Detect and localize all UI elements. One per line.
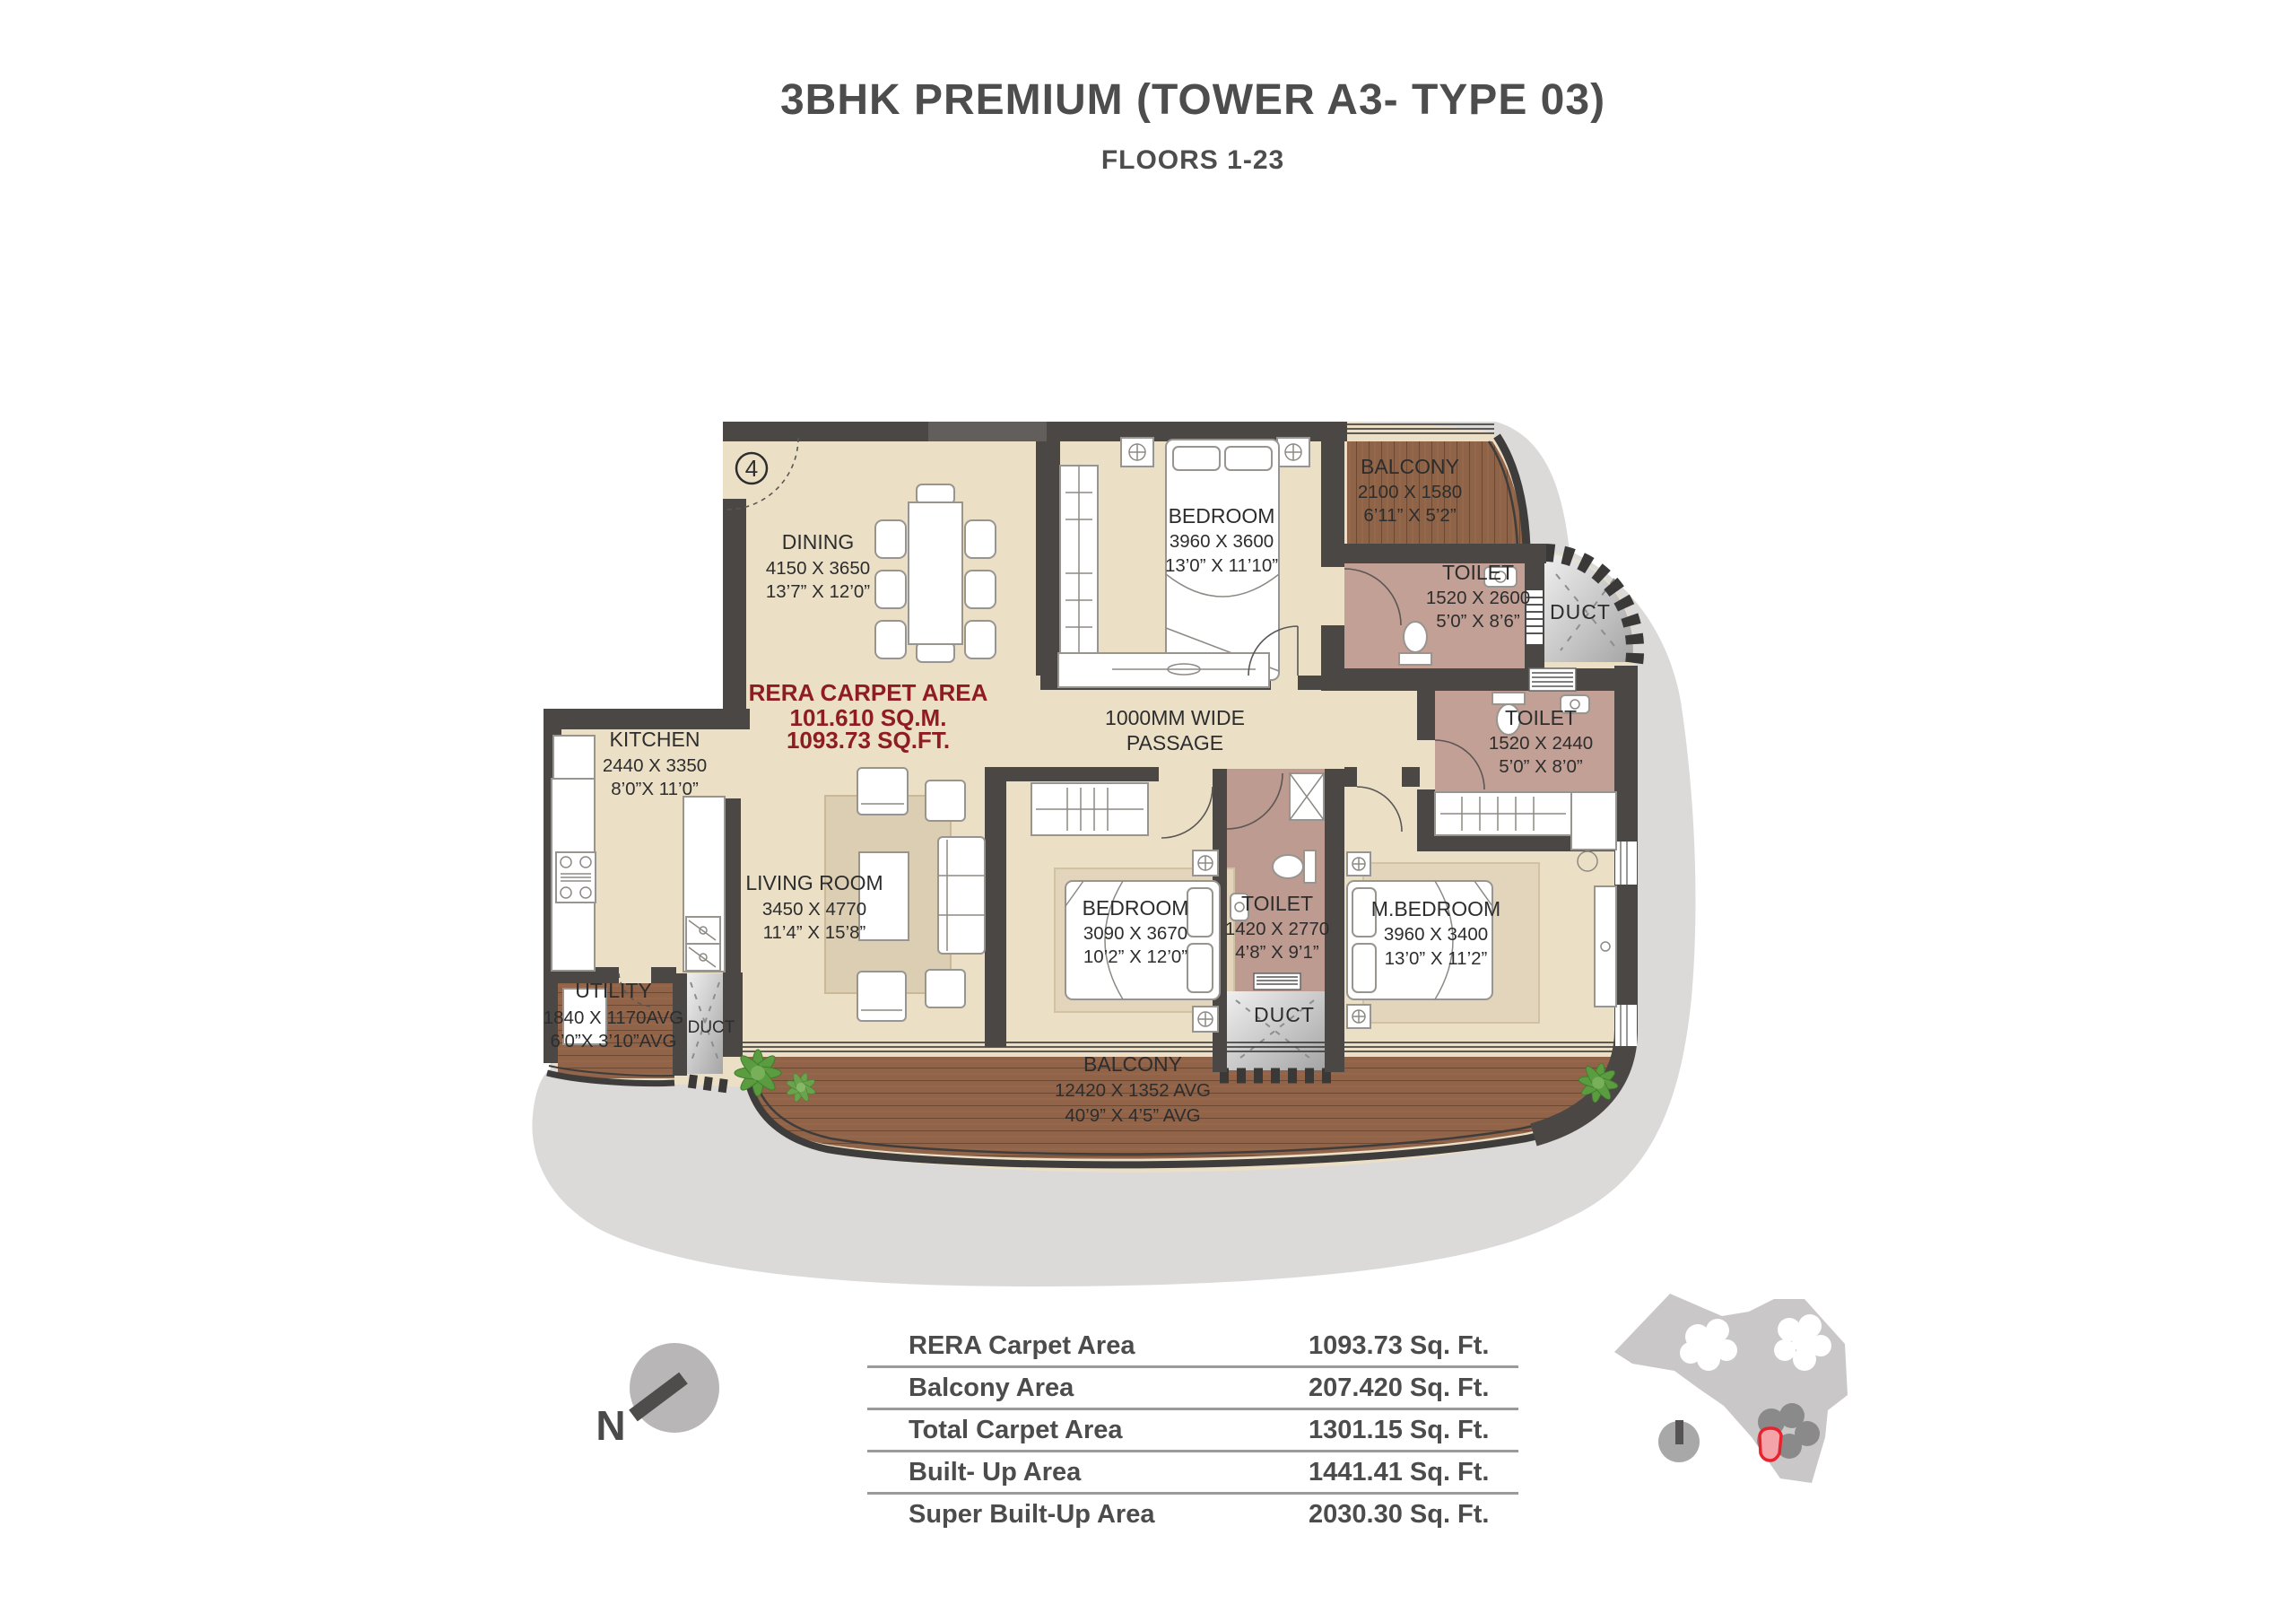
svg-text:10’2” X 12’0”: 10’2” X 12’0”: [1083, 946, 1187, 967]
window-icon: [1615, 842, 1637, 885]
svg-text:1520 X 2440: 1520 X 2440: [1489, 733, 1593, 754]
area-label: Super Built-Up Area: [909, 1495, 1154, 1534]
area-value: 2030.30 Sq. Ft.: [1309, 1495, 1490, 1534]
room-label-balcony-top: BALCONY 2100 X 1580 6’11” X 5’2”: [1358, 455, 1462, 526]
unit-marker-number: 4: [745, 455, 758, 482]
svg-text:5’0” X 8’6”: 5’0” X 8’6”: [1436, 611, 1520, 632]
svg-text:TOILET: TOILET: [1241, 892, 1313, 915]
sink-icon: [686, 917, 720, 971]
svg-text:3960 X 3400: 3960 X 3400: [1384, 924, 1488, 945]
area-statement-table: RERA Carpet Area 1093.73 Sq. Ft. Balcony…: [867, 1326, 1518, 1534]
window-icon: [1615, 1005, 1637, 1046]
svg-text:4150 X 3650: 4150 X 3650: [766, 558, 870, 579]
svg-text:DINING: DINING: [782, 530, 855, 554]
svg-text:M.BEDROOM: M.BEDROOM: [1371, 897, 1500, 920]
svg-text:11’4” X 15’8”: 11’4” X 15’8”: [763, 922, 866, 943]
svg-text:1420 X 2770: 1420 X 2770: [1225, 919, 1329, 939]
table-row: Built- Up Area 1441.41 Sq. Ft.: [867, 1452, 1518, 1495]
svg-text:2440 X 3350: 2440 X 3350: [603, 755, 707, 776]
key-plan: [1614, 1294, 1848, 1483]
nightstand-icon: [1347, 1005, 1370, 1028]
dresser-icon: [1595, 886, 1616, 1007]
svg-text:13’0” X 11’2”: 13’0” X 11’2”: [1385, 948, 1488, 969]
room-label-kitchen: KITCHEN 2440 X 3350 8’0”X 11’0”: [603, 728, 707, 799]
wardrobe-icon: [1435, 792, 1571, 835]
nightstand-icon: [1193, 850, 1218, 876]
svg-text:40’9” X 4’5” AVG: 40’9” X 4’5” AVG: [1065, 1105, 1200, 1126]
room-label-duct-top: DUCT: [1550, 600, 1611, 624]
svg-text:13’7” X 12’0”: 13’7” X 12’0”: [766, 581, 870, 602]
svg-text:3960 X 3600: 3960 X 3600: [1170, 531, 1274, 552]
svg-text:TOILET: TOILET: [1505, 706, 1577, 729]
svg-text:4’8” X 9’1”: 4’8” X 9’1”: [1235, 942, 1319, 963]
room-label-master-bedroom: M.BEDROOM 3960 X 3400 13’0” X 11’2”: [1371, 897, 1500, 969]
table-row: RERA Carpet Area 1093.73 Sq. Ft.: [867, 1326, 1518, 1368]
nightstand-icon: [1193, 1007, 1218, 1032]
vent-grill-icon: [1529, 668, 1576, 691]
room-label-bedroom-top: BEDROOM 3960 X 3600 13’0” X 11’10”: [1165, 504, 1278, 576]
svg-text:13’0” X 11’10”: 13’0” X 11’10”: [1165, 555, 1278, 576]
north-label: N: [596, 1402, 625, 1449]
svg-text:TOILET: TOILET: [1442, 561, 1514, 584]
svg-text:1093.73 SQ.FT.: 1093.73 SQ.FT.: [787, 727, 950, 754]
svg-text:1840 X 1170AVG: 1840 X 1170AVG: [544, 1007, 684, 1028]
tv-console-icon: [1058, 653, 1269, 687]
table-row: Total Carpet Area 1301.15 Sq. Ft.: [867, 1410, 1518, 1452]
area-label: Built- Up Area: [909, 1452, 1081, 1492]
north-indicator: N: [596, 1343, 719, 1449]
wardrobe-icon: [1060, 466, 1098, 676]
svg-text:6’11” X 5’2”: 6’11” X 5’2”: [1363, 505, 1456, 526]
svg-text:BALCONY: BALCONY: [1361, 455, 1459, 478]
plant-icon: [735, 1050, 781, 1096]
area-value: 207.420 Sq. Ft.: [1309, 1368, 1490, 1408]
nightstand-icon: [1347, 852, 1370, 876]
svg-text:BALCONY: BALCONY: [1083, 1052, 1182, 1076]
svg-text:6’0”X 3’10”AVG: 6’0”X 3’10”AVG: [551, 1031, 677, 1051]
svg-text:1000MM WIDE: 1000MM WIDE: [1105, 706, 1245, 729]
svg-text:1520 X 2600: 1520 X 2600: [1426, 588, 1530, 608]
room-label-duct-left: DUCT: [688, 1018, 735, 1037]
svg-text:BEDROOM: BEDROOM: [1169, 504, 1275, 528]
area-label: Balcony Area: [909, 1368, 1074, 1408]
room-label-living: LIVING ROOM 3450 X 4770 11’4” X 15’8”: [745, 871, 883, 943]
shower-icon: [1290, 773, 1324, 820]
area-label: Total Carpet Area: [909, 1410, 1123, 1450]
wardrobe-icon: [1031, 783, 1148, 835]
stove-icon: [556, 852, 596, 903]
svg-text:12420 X 1352 AVG: 12420 X 1352 AVG: [1055, 1080, 1211, 1101]
svg-text:3090 X 3670: 3090 X 3670: [1083, 923, 1187, 944]
area-label: RERA Carpet Area: [909, 1326, 1135, 1365]
svg-text:2100 X 1580: 2100 X 1580: [1358, 482, 1462, 502]
nightstand-icon: [1121, 438, 1153, 467]
key-plan-north-bar: [1675, 1420, 1683, 1444]
area-value: 1441.41 Sq. Ft.: [1309, 1452, 1490, 1492]
svg-text:3450 X 4770: 3450 X 4770: [762, 899, 866, 920]
svg-text:BEDROOM: BEDROOM: [1083, 896, 1189, 920]
table-row: Super Built-Up Area 2030.30 Sq. Ft.: [867, 1495, 1518, 1534]
svg-text:8’0”X 11’0”: 8’0”X 11’0”: [611, 779, 699, 799]
key-plan-unit-highlight: [1760, 1428, 1781, 1461]
svg-text:KITCHEN: KITCHEN: [610, 728, 700, 751]
svg-text:UTILITY: UTILITY: [575, 979, 652, 1002]
area-value: 1301.15 Sq. Ft.: [1309, 1410, 1490, 1450]
nightstand-icon: [1277, 438, 1309, 467]
area-value: 1093.73 Sq. Ft.: [1309, 1326, 1490, 1365]
vent-grill-icon: [1254, 973, 1300, 990]
room-label-duct-mid: DUCT: [1254, 1003, 1315, 1026]
room-label-bedroom-mid: BEDROOM 3090 X 3670 10’2” X 12’0”: [1083, 896, 1189, 967]
svg-text:RERA CARPET AREA: RERA CARPET AREA: [749, 679, 988, 706]
svg-text:LIVING ROOM: LIVING ROOM: [745, 871, 883, 894]
table-row: Balcony Area 207.420 Sq. Ft.: [867, 1368, 1518, 1410]
svg-text:PASSAGE: PASSAGE: [1126, 731, 1223, 754]
svg-text:5’0” X 8’0”: 5’0” X 8’0”: [1499, 756, 1583, 777]
